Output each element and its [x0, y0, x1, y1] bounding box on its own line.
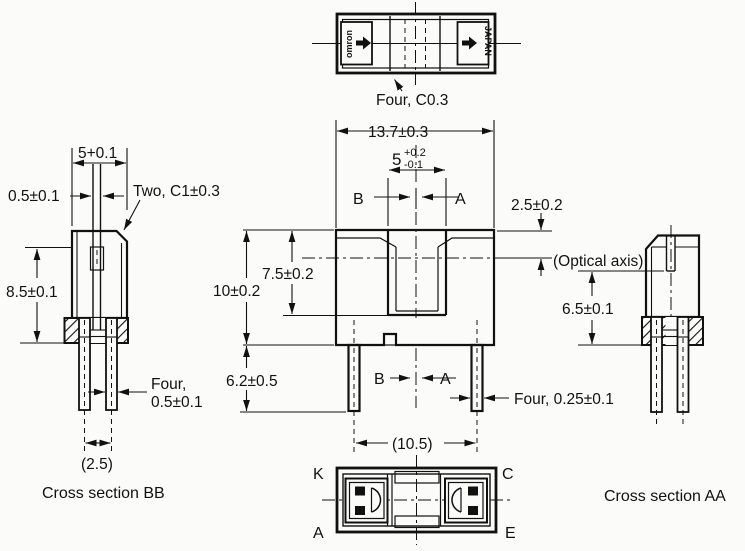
section-marker-a-top: A	[455, 191, 466, 208]
chamfer-leader-line	[395, 80, 403, 92]
front-view	[302, 145, 497, 452]
pin-label-k: K	[313, 466, 324, 483]
dim-lead-thickness-1: Four,	[151, 376, 186, 393]
emitter-pad-bottom	[355, 506, 365, 515]
bottom-view: K C A E	[313, 455, 516, 545]
dim-overall-height: 10±0.2	[213, 283, 260, 300]
bb-body-outline	[72, 231, 127, 318]
pin-label-c: C	[502, 466, 514, 483]
section-marker-b-top: B	[353, 191, 364, 208]
aa-body-outline	[646, 236, 699, 318]
brand-text: omron	[344, 30, 354, 58]
detector-block	[445, 479, 487, 523]
technical-drawing-page: omron JAPAN Four, C0.3	[0, 0, 745, 551]
emitter-block	[346, 479, 388, 523]
bb-caption: Cross section BB	[42, 485, 165, 502]
pin-label-a: A	[313, 525, 324, 542]
top-view: omron JAPAN Four, C0.3	[312, 2, 521, 109]
dim-lead-length: 6.2±0.5	[226, 373, 278, 390]
dim-bb-width: 5+0.1	[78, 145, 117, 162]
gate-notch	[384, 334, 396, 345]
aa-base-center-gap	[666, 317, 679, 345]
front-dimensions: 13.7±0.3 5 +0.2 -0.1 B A B A 2.5±0.2 10±…	[213, 120, 614, 453]
dim-lead-thickness-2: 0.5±0.1	[151, 394, 203, 411]
cross-section-aa: (Optical axis) 6.5±0.1 Cross section AA	[553, 225, 726, 505]
dim-lead-width: Four, 0.25±0.1	[514, 391, 614, 408]
dim-slot-width-tol-minus: -0.1	[404, 159, 423, 171]
pin-label-e: E	[505, 525, 516, 542]
aa-caption: Cross section AA	[604, 488, 726, 505]
dim-optical-axis-offset: 2.5±0.2	[511, 197, 563, 214]
dimension-drawing-canvas: omron JAPAN Four, C0.3	[0, 0, 745, 551]
chamfer-note-top: Four, C0.3	[376, 92, 448, 109]
cross-section-bb: 5+0.1 0.5±0.1 Two, C1±0.3 8.5±0.1 Four, …	[6, 145, 220, 502]
dim-chamfer-note: Two, C1±0.3	[133, 183, 220, 200]
dim-slot-depth: 7.5±0.2	[262, 266, 314, 283]
dim-bb-slit: 0.5±0.1	[8, 188, 60, 205]
dim-bb-height: 8.5±0.1	[6, 284, 58, 301]
dim-aa-optical-height: 6.5±0.1	[562, 301, 614, 318]
section-marker-b-bottom: B	[374, 371, 385, 388]
dim-overall-width: 13.7±0.3	[368, 124, 428, 141]
detector-pad-bottom	[468, 506, 478, 515]
dim-slot-width-tol-plus: +0.2	[404, 147, 426, 159]
dim-slot-width: 5	[392, 150, 401, 169]
section-marker-a-bottom: A	[440, 371, 451, 388]
detector-pad-top	[468, 487, 478, 496]
origin-text: JAPAN	[483, 26, 493, 56]
optical-axis-label: (Optical axis)	[553, 253, 643, 270]
dim-bb-lead-pitch: (2.5)	[81, 456, 113, 473]
front-body-outline	[336, 230, 494, 345]
emitter-pad-top	[355, 487, 365, 496]
dim-lead-span: (10.5)	[392, 436, 433, 453]
